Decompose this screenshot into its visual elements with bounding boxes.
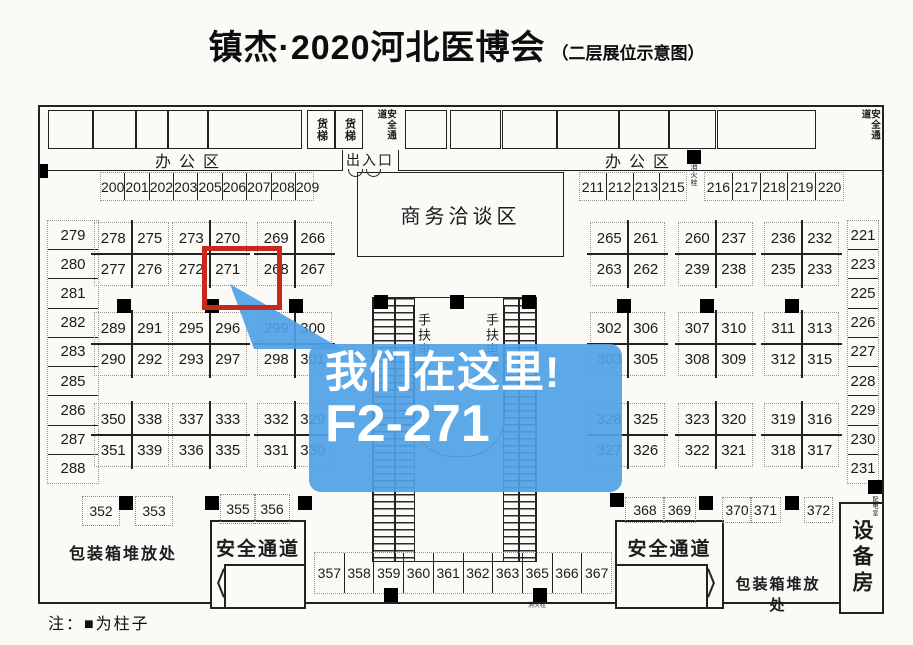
booth-row-top-right-b: 216217218219220 [704,172,844,201]
booth-island: 265261263262 [590,222,665,286]
booth-276: 276 [132,254,169,285]
booth-227: 227 [848,337,878,366]
booth-358: 358 [344,553,374,593]
booth-308: 308 [679,344,716,375]
pillar-icon [687,150,701,164]
office-area-right: 办公区 [398,150,883,171]
pillar-icon [617,299,631,313]
pillar-icon [533,588,547,602]
door-mark-icon [707,568,715,584]
booth-island: 236232235233 [764,222,839,286]
booth-291: 291 [132,313,169,344]
booth-372: 372 [804,497,833,523]
booth-306: 306 [628,313,665,344]
booth-275: 275 [132,223,169,254]
booth-281: 281 [48,278,98,307]
booth-237: 237 [716,223,753,254]
freight-elevator-label: 货梯 [307,110,335,149]
office-strip-cell [167,110,209,149]
booth-279: 279 [48,221,98,249]
booth-360: 360 [403,553,433,593]
booth-337: 337 [173,404,210,435]
booth-285: 285 [48,366,98,395]
freight-elevator-text: 货梯 [316,118,327,142]
booth-355: 355 [220,494,256,524]
booth-215: 215 [659,173,686,200]
pillar-icon [289,299,303,313]
pillar-icon [700,299,714,313]
booth-229: 229 [848,395,878,424]
safety-passage-text: 安全通道 [617,534,722,561]
pillar-icon [785,299,799,313]
booth-267: 267 [295,254,332,285]
booth-island: 260237239238 [678,222,753,286]
office-area-right-text: 办公区 [605,148,677,172]
pillar-icon [298,496,312,510]
booth-236: 236 [765,223,802,254]
booth-368: 368 [625,497,665,523]
booth-319: 319 [765,404,802,435]
pillar-icon [374,295,388,309]
title-main: 镇杰·2020河北医博会 [209,29,546,67]
callout-bubble: 我们在这里! F2-271 [309,344,622,492]
booth-366: 366 [552,553,582,593]
booth-352: 352 [82,496,120,526]
booth-island: 307310308309 [678,312,753,376]
page: 镇杰·2020河北医博会（二层展位示意图） 货梯 货梯 安全通道 安全通道 办公… [0,0,913,645]
booth-292: 292 [132,344,169,375]
booth-353: 353 [135,496,173,526]
booth-206: 206 [222,173,246,200]
office-strip-cell [502,110,557,149]
booth-307: 307 [679,313,716,344]
booth-321: 321 [716,435,753,466]
booth-207: 207 [246,173,270,200]
booth-287: 287 [48,425,98,454]
booth-309: 309 [716,344,753,375]
pillar-icon [119,496,133,510]
pillar-icon [699,496,713,510]
booth-209: 209 [295,173,319,200]
booth-island: 323320322321 [678,403,753,467]
pillar-icon [40,164,48,178]
booth-island: 311313312315 [764,312,839,376]
booth-351: 351 [95,435,132,466]
booth-row-top-left: 200201202203205206207208209 [100,172,314,201]
entrance-text: 出入口 [346,152,394,168]
booth-362: 362 [463,553,493,593]
highlight-booth-271-box [202,246,282,310]
booth-260: 260 [679,223,716,254]
booth-220: 220 [815,173,843,200]
office-strip-cell [405,110,447,149]
title-sub: （二层展位示意图） [551,44,704,63]
pillar-icon [117,299,131,313]
booth-338: 338 [132,404,169,435]
pillar-icon [522,295,536,309]
booth-island: 319316318317 [764,403,839,467]
booth-239: 239 [679,254,716,285]
pillar-icon [384,588,398,602]
booth-212: 212 [606,173,633,200]
stair-inner-box [615,564,708,609]
office-strip-cell [557,110,619,149]
office-strip-cell [669,110,716,149]
booth-238: 238 [716,254,753,285]
booth-262: 262 [628,254,665,285]
booth-277: 277 [95,254,132,285]
office-area-left-text: 办公区 [155,148,227,172]
booth-371: 371 [750,497,781,523]
booth-331: 331 [258,435,295,466]
pillar-icon [450,295,464,309]
page-title: 镇杰·2020河北医博会（二层展位示意图） [0,20,913,69]
booth-295: 295 [173,313,210,344]
booth-266: 266 [295,223,332,254]
booth-231: 231 [848,454,878,483]
booth-315: 315 [802,344,839,375]
booth-367: 367 [581,553,611,593]
office-area-left: 办公区 [40,150,343,171]
callout-booth-code: F2-271 [325,397,622,452]
booth-263: 263 [591,254,628,285]
booth-286: 286 [48,395,98,424]
booth-island: 278275277276 [94,222,169,286]
booth-217: 217 [732,173,760,200]
booth-336: 336 [173,435,210,466]
booth-row-top-right-a: 211212213215 [579,172,687,201]
booth-223: 223 [848,249,878,278]
booth-211: 211 [580,173,606,200]
booth-320: 320 [716,404,753,435]
safety-passage-text: 安全通道 [212,534,304,561]
booth-216: 216 [705,173,732,200]
booth-225: 225 [848,278,878,307]
fire-hydrant-label-bottom: 消火栓 [528,603,546,609]
safety-passage-stair-left: 安全通道 [210,520,306,609]
booth-235: 235 [765,254,802,285]
booth-335: 335 [210,435,247,466]
booth-326: 326 [628,435,665,466]
booth-313: 313 [802,313,839,344]
safety-passage-stair-right: 安全通道 [615,520,724,609]
freight-elevator-label: 货梯 [335,110,363,149]
booth-305: 305 [628,344,665,375]
booth-233: 233 [802,254,839,285]
office-strip-cell [207,110,302,149]
booth-311: 311 [765,313,802,344]
stair-inner-box [224,564,306,609]
booth-228: 228 [848,366,878,395]
booth-357: 357 [315,553,344,593]
booth-232: 232 [802,223,839,254]
booth-200: 200 [101,173,124,200]
booth-296: 296 [210,313,247,344]
booth-205: 205 [197,173,221,200]
door-mark-icon [707,582,715,598]
booth-318: 318 [765,435,802,466]
booth-361: 361 [433,553,463,593]
pillar-icon [205,496,219,510]
booth-row-right-col: 221223225226227228229230231 [847,220,879,484]
booth-365: 365 [522,553,552,593]
booth-230: 230 [848,425,878,454]
freight-elevator-text: 货梯 [344,118,355,142]
office-strip-cell [135,110,169,149]
pillar-icon [785,496,799,510]
booth-316: 316 [802,404,839,435]
booth-312: 312 [765,344,802,375]
equipment-room: 设备房 [839,502,884,614]
booth-322: 322 [679,435,716,466]
booth-369: 369 [663,497,696,523]
booth-283: 283 [48,337,98,366]
entrance: 出入口 [342,150,398,170]
office-strip-cell [48,110,94,149]
power-room-label: 配电室 [871,496,877,517]
business-negotiation-text: 商务洽谈区 [401,200,521,229]
office-strip-cell [92,110,137,149]
equipment-room-text: 设备房 [851,519,872,597]
fire-hydrant-label-top: 消火栓 [690,163,697,187]
booth-202: 202 [149,173,173,200]
packing-box-area-left: 包装箱堆放处 [68,540,178,564]
packing-box-area-right: 包装箱堆放处 [728,573,828,615]
booth-325: 325 [628,404,665,435]
business-negotiation-area: 商务洽谈区 [357,172,564,257]
booth-356: 356 [254,494,290,524]
booth-333: 333 [210,404,247,435]
booth-323: 323 [679,404,716,435]
booth-317: 317 [802,435,839,466]
booth-218: 218 [760,173,788,200]
booth-282: 282 [48,308,98,337]
booth-297: 297 [210,344,247,375]
booth-201: 201 [124,173,148,200]
booth-island: 289291290292 [94,312,169,376]
legend-note: 注：■为柱子 [48,610,150,634]
booth-278: 278 [95,223,132,254]
booth-302: 302 [591,313,628,344]
booth-island: 350338351339 [94,403,169,467]
office-strip-cell [619,110,669,149]
office-strip-cell [717,110,816,149]
booth-213: 213 [633,173,660,200]
booth-310: 310 [716,313,753,344]
booth-359: 359 [373,553,403,593]
booth-370: 370 [722,497,752,523]
floor-plan: 货梯 货梯 安全通道 安全通道 办公区 出入口 办公区 商务洽谈区 [38,105,884,604]
booth-203: 203 [173,173,197,200]
booth-293: 293 [173,344,210,375]
booth-row-bottom-center: 357358359360361362363365366367 [314,552,612,594]
booth-290: 290 [95,344,132,375]
booth-363: 363 [492,553,522,593]
safety-passage-label-top-right: 安全通道 [860,109,879,149]
pillar-icon [610,493,624,507]
booth-289: 289 [95,313,132,344]
booth-261: 261 [628,223,665,254]
booth-339: 339 [132,435,169,466]
safety-passage-label-top-mid: 安全通道 [376,109,395,149]
booth-288: 288 [48,454,98,483]
booth-350: 350 [95,404,132,435]
office-strip-cell [450,110,501,149]
booth-221: 221 [848,221,878,249]
booth-208: 208 [271,173,295,200]
booth-row-left-col: 279280281282283285286287288 [47,220,99,484]
booth-island: 337333336335 [172,403,247,467]
booth-226: 226 [848,308,878,337]
pillar-icon [868,480,882,494]
booth-219: 219 [787,173,815,200]
booth-island: 295296293297 [172,312,247,376]
booth-332: 332 [258,404,295,435]
callout-text: 我们在这里! [325,350,622,397]
booth-265: 265 [591,223,628,254]
